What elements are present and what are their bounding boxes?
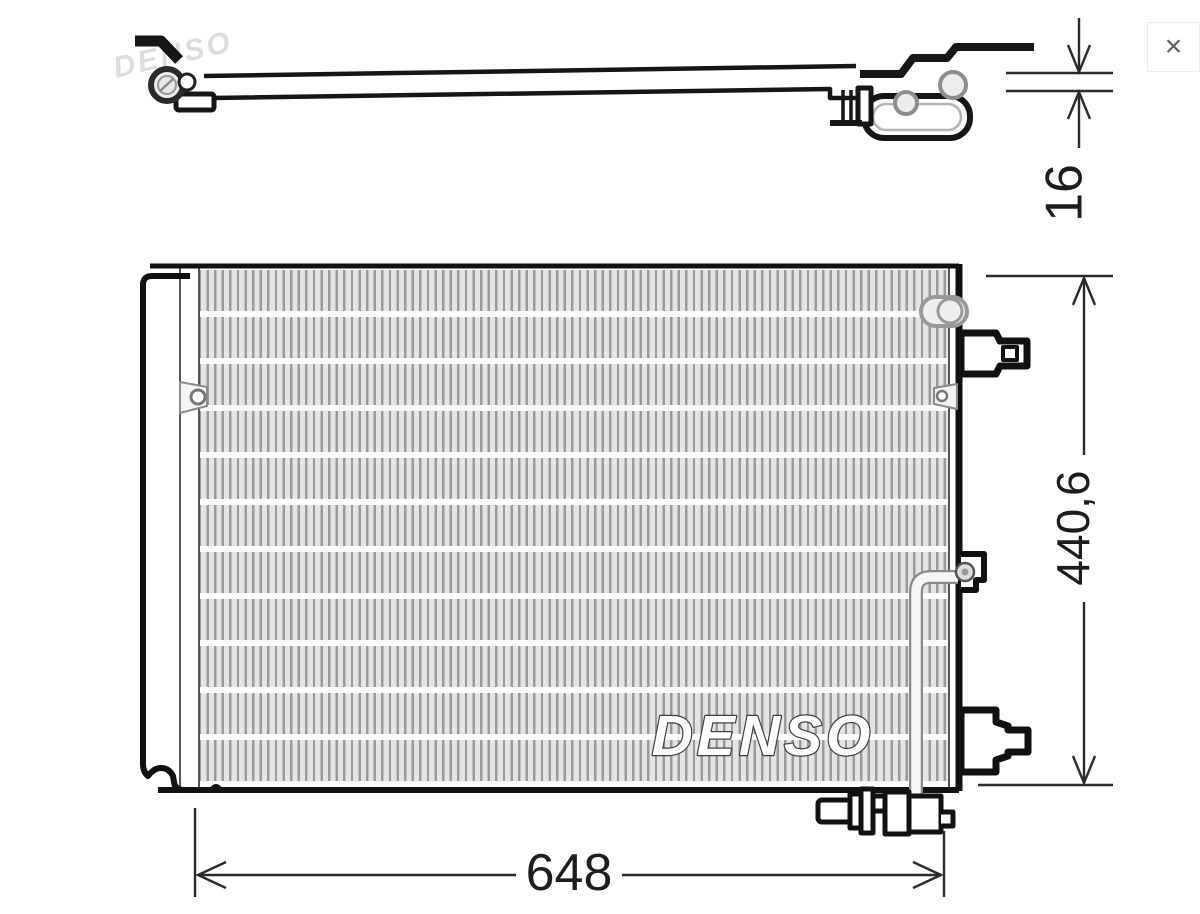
outlet-port: [961, 710, 1028, 772]
height-label: 440,6: [1047, 470, 1099, 585]
close-button[interactable]: ×: [1147, 22, 1200, 72]
inlet-port-hole: [1003, 347, 1017, 360]
close-icon: ×: [1165, 32, 1183, 62]
image-viewer: DENSO: [0, 0, 1200, 914]
valve-assembly: [818, 789, 953, 834]
condenser-drawing: DENSO: [0, 0, 1200, 914]
brand-logo-text: DENSO: [652, 704, 875, 768]
valve-block-center: [885, 792, 909, 834]
top-oval-port: [938, 299, 962, 323]
left-small-port: [179, 74, 195, 90]
width-label: 648: [526, 844, 613, 902]
top-view-drawing: DENSO: [110, 25, 1034, 138]
pipe-end-hole: [962, 569, 969, 576]
right-rib-block: [858, 88, 871, 124]
right-mount-hole: [937, 391, 947, 401]
valve-block-right: [909, 796, 941, 832]
body-top-line: [204, 66, 856, 76]
valve-spigot: [818, 800, 852, 822]
condenser-front-view: DENSO: [143, 264, 1028, 834]
right-flag-plate: [860, 47, 1034, 74]
thickness-label: 16: [1036, 164, 1094, 222]
right-ribs: [843, 90, 851, 122]
right-fitting-upper: [940, 72, 966, 98]
left-mount-hole: [191, 390, 205, 404]
left-tank: [179, 267, 200, 788]
body-bottom-line: [212, 89, 866, 98]
valve-notch: [941, 812, 953, 826]
right-fitting-lower: [895, 92, 917, 114]
